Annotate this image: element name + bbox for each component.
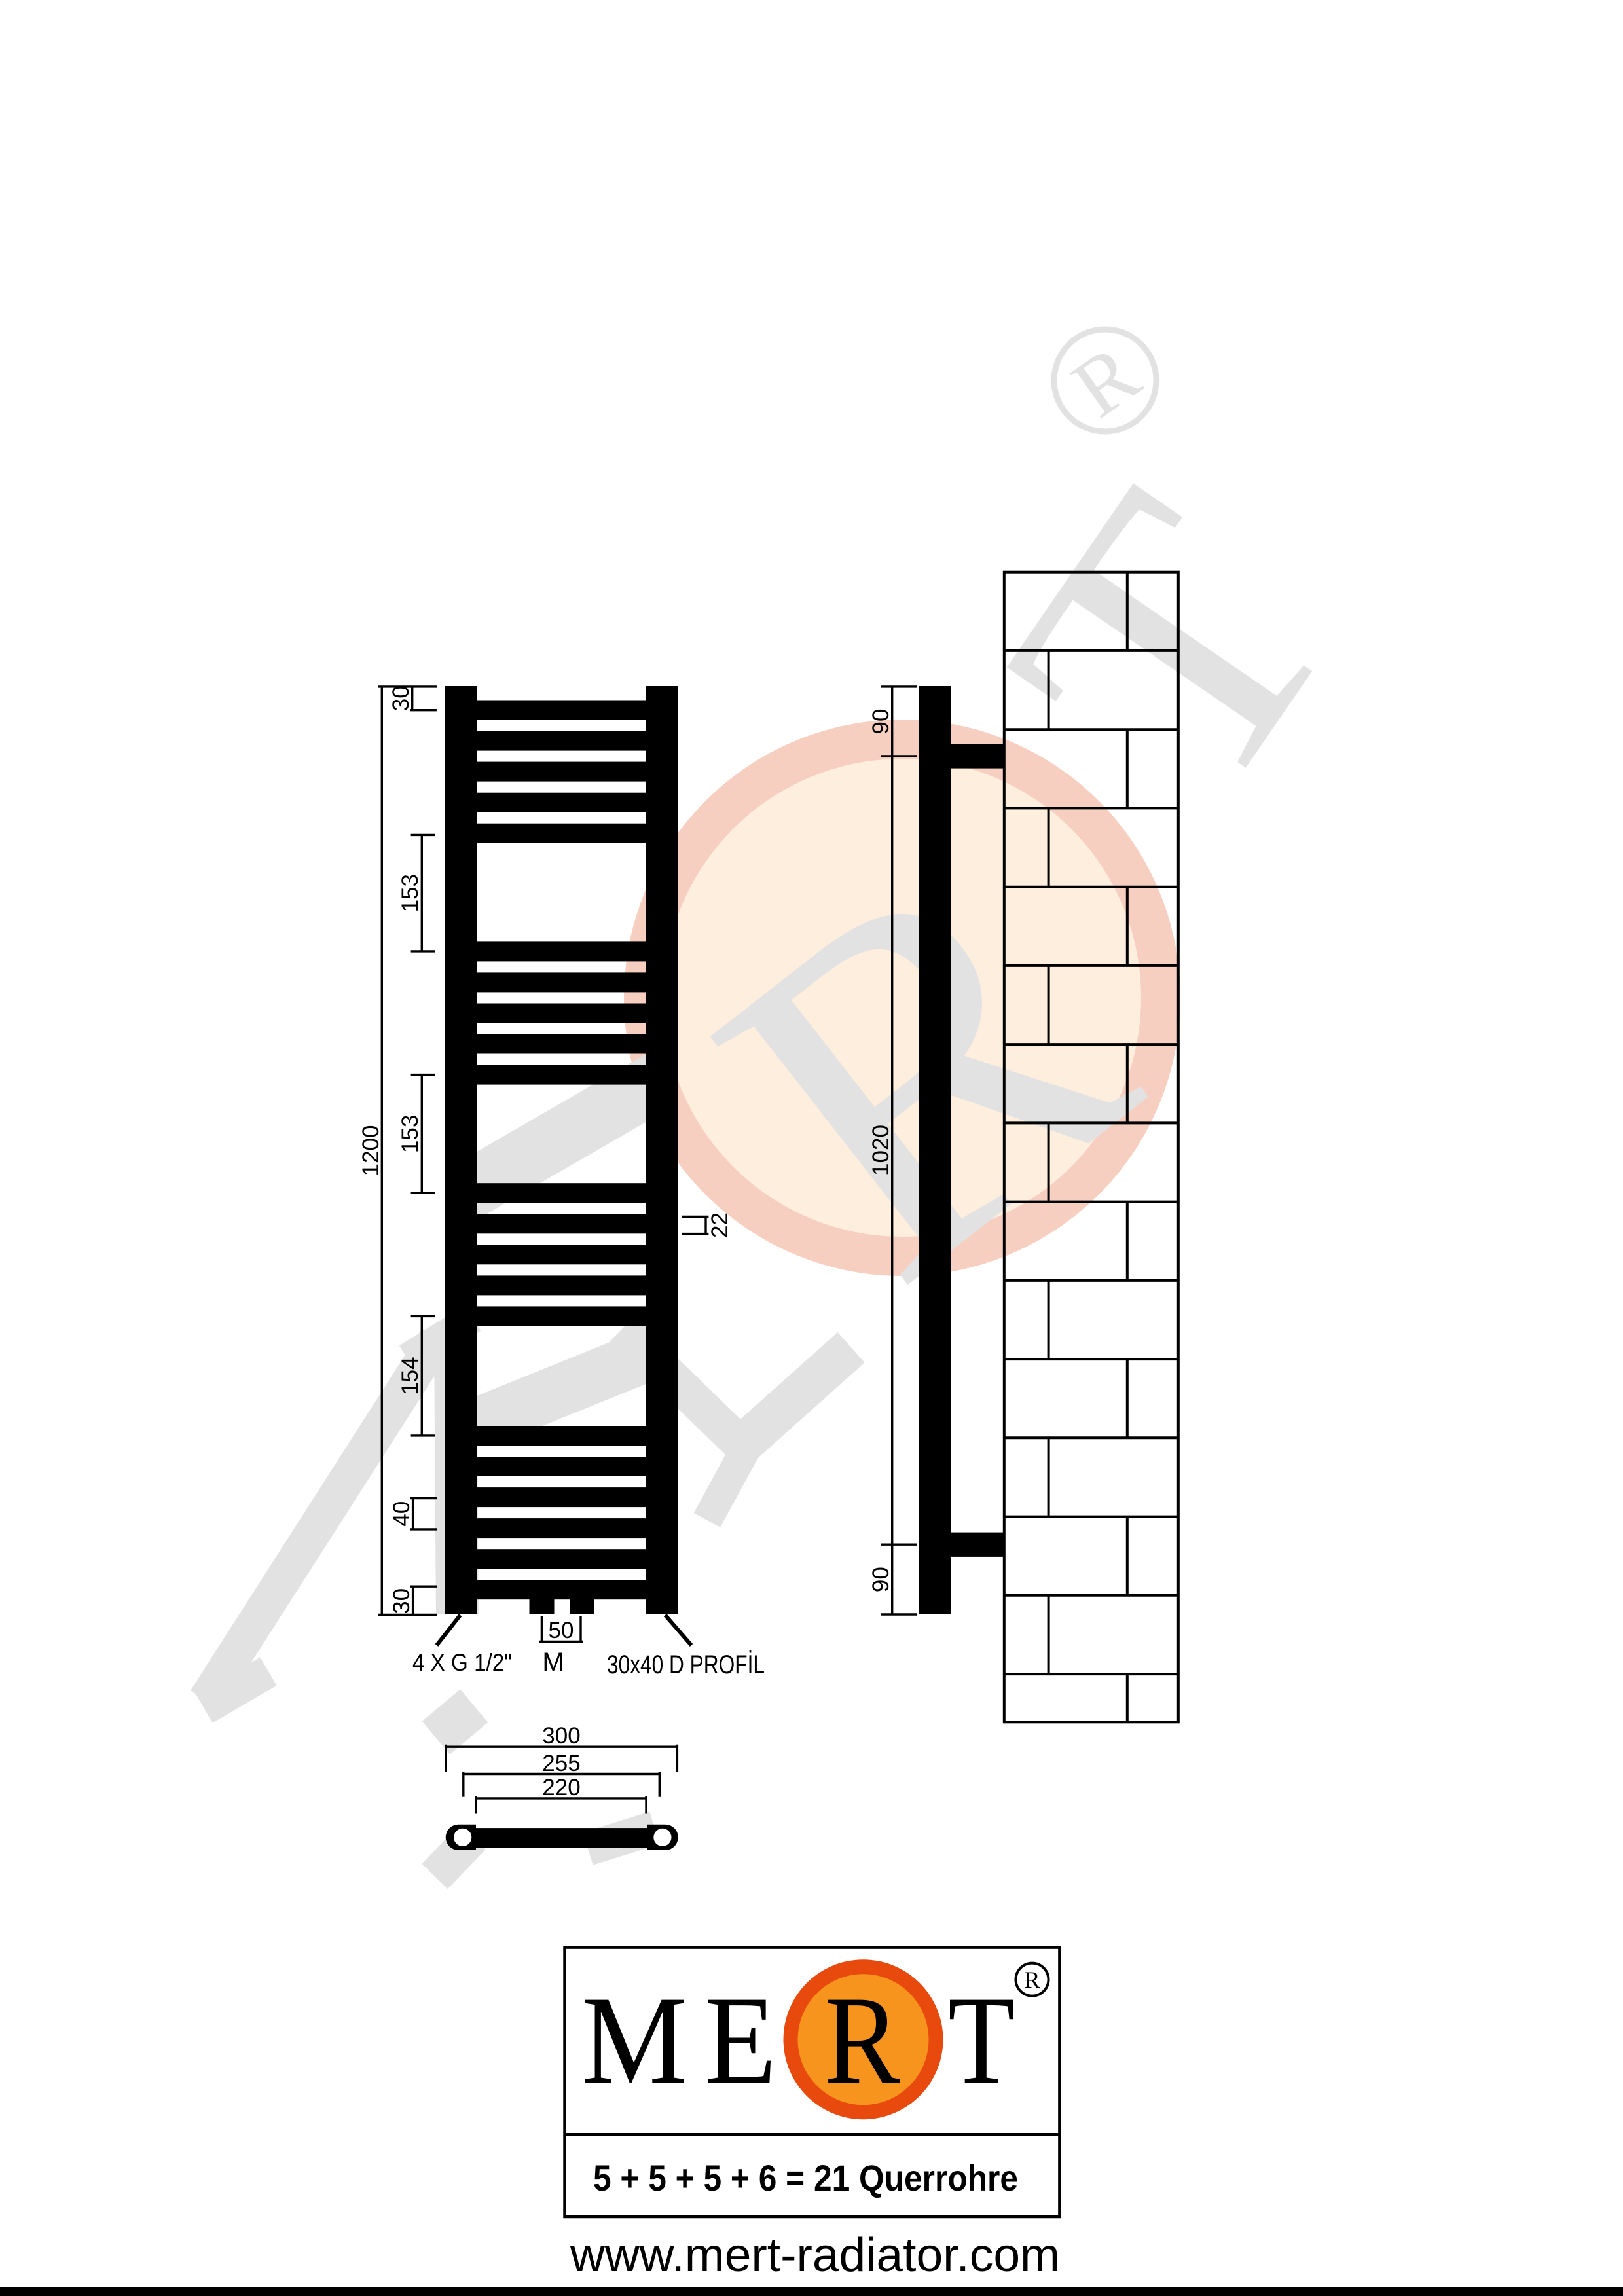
- svg-text:154: 154: [397, 1357, 423, 1394]
- svg-text:M: M: [581, 1970, 687, 2110]
- svg-text:30x40 D PROFİL: 30x40 D PROFİL: [607, 1650, 765, 1679]
- svg-text:30: 30: [389, 1588, 414, 1614]
- svg-text:1020: 1020: [868, 1125, 894, 1176]
- svg-text:R: R: [824, 1970, 900, 2110]
- svg-text:M: M: [542, 1648, 564, 1677]
- svg-text:22: 22: [707, 1212, 733, 1238]
- svg-text:90: 90: [868, 1567, 894, 1592]
- svg-text:1200: 1200: [358, 1125, 384, 1176]
- svg-text:www.mert-radiator.com: www.mert-radiator.com: [570, 2229, 1060, 2282]
- svg-text:300: 300: [542, 1723, 580, 1749]
- svg-text:255: 255: [542, 1751, 580, 1776]
- svg-text:R: R: [1024, 1967, 1040, 1993]
- svg-text:5 + 5 + 5 + 6 = 21 Querrohre: 5 + 5 + 5 + 6 = 21 Querrohre: [593, 2157, 1018, 2198]
- svg-text:40: 40: [389, 1501, 414, 1527]
- svg-text:E: E: [704, 1970, 776, 2110]
- svg-text:153: 153: [397, 874, 423, 912]
- svg-text:T: T: [948, 1970, 1015, 2110]
- svg-text:4 X G 1/2": 4 X G 1/2": [412, 1649, 512, 1676]
- svg-text:30: 30: [388, 685, 414, 711]
- svg-text:220: 220: [542, 1775, 580, 1800]
- svg-text:90: 90: [868, 709, 894, 735]
- svg-text:50: 50: [549, 1618, 574, 1643]
- svg-text:153: 153: [397, 1115, 423, 1153]
